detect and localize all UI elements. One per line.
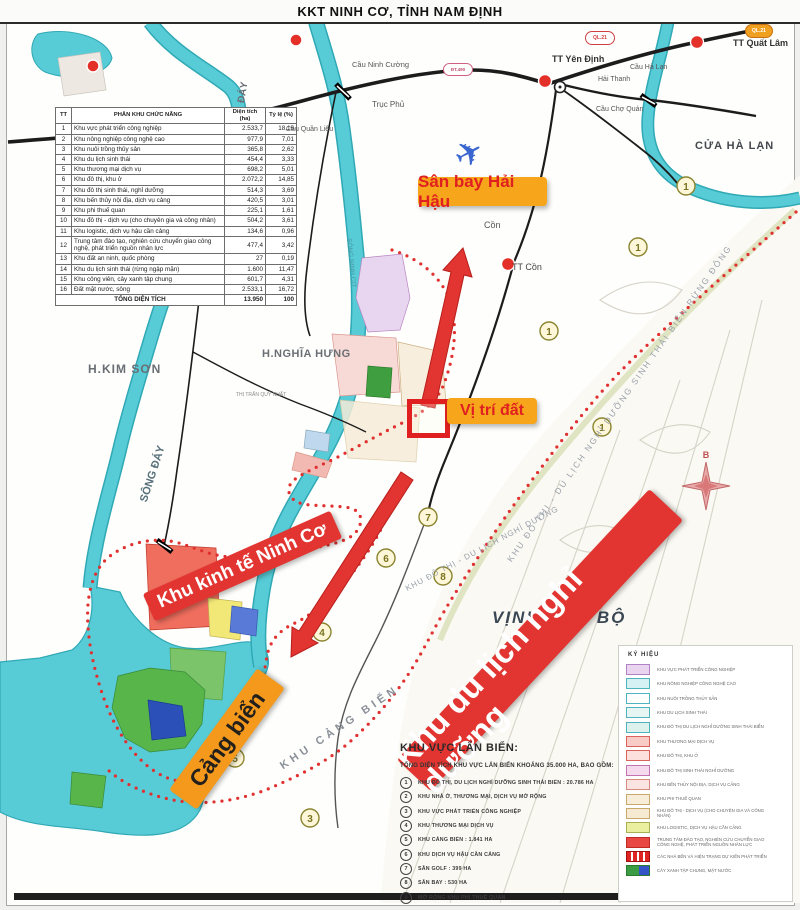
legend-label: KHU PHI THUẾ QUAN (650, 796, 777, 801)
legend-swatch (626, 794, 650, 805)
label-cau-ninh-cuong: Cầu Ninh Cường (352, 60, 409, 69)
item-number-badge: 1 (400, 777, 412, 789)
item-label: KHU NHÀ Ở, THƯƠNG MẠI, DỊCH VỤ MỞ RỘNG (418, 794, 547, 800)
road-shield-dt490: ĐT.490 (443, 63, 473, 76)
legend-item: TRUNG TÂM ĐÀO TẠO, NGHIÊN CỨU CHUYỂN GIA… (626, 837, 792, 848)
table-row: 8Khu bến thủy nội địa, dịch vụ cảng420,5… (56, 195, 297, 205)
legend-swatch (626, 678, 650, 689)
legend-swatch (626, 664, 650, 675)
table-row: 12Trung tâm đào tạo, nghiên cứu chuyển g… (56, 236, 297, 253)
sea-reclaim-item: 3KHU VỰC PHÁT TRIỂN CÔNG NGHIỆP (400, 805, 625, 819)
legend-swatch (626, 808, 650, 819)
legend-item: KHU THƯƠNG MẠI DỊCH VỤ (626, 736, 792, 747)
table-body: 1Khu vực phát triển công nghiệp2.533,718… (56, 124, 297, 295)
label-cau-cho-quan: Cầu Chợ Quán (596, 106, 643, 113)
sea-reclaim-item: 2KHU NHÀ Ở, THƯƠNG MẠI, DỊCH VỤ MỞ RỘNG (400, 790, 625, 804)
legend-label: KHU ĐÔ THỊ DU LỊCH NGHỈ DƯỠNG SINH THÁI … (650, 724, 777, 729)
legend-item: CÂY XANH TẬP CHUNG, MẶT NƯỚC (626, 865, 792, 876)
callout-airport: Sân bay Hải Hậu (418, 177, 547, 206)
item-number-badge: 9 (400, 892, 412, 904)
sea-reclaim-item: 6KHU DỊCH VỤ HẬU CẦN CẢNG (400, 847, 625, 861)
table-header-name: PHÂN KHU CHỨC NĂNG (72, 108, 225, 124)
legend-title: KÝ HIỆU (628, 652, 792, 658)
label-truc-phu: Trục Phủ (372, 100, 404, 109)
legend-swatch (626, 736, 650, 747)
item-number-badge: 2 (400, 791, 412, 803)
district-label-kim-son: H.KIM SƠN (88, 362, 161, 376)
item-label: SÂN GOLF : 399 HA (418, 866, 471, 872)
svg-text:6: 6 (383, 554, 389, 565)
town-label-tt-con: TT Cồn (512, 262, 542, 272)
table-row: 14Khu du lịch sinh thái (rừng ngập mặn)1… (56, 264, 297, 274)
table-row: 9Khu phi thuế quan225,11,61 (56, 206, 297, 216)
town-label-yen-dinh: TT Yên Định (552, 54, 604, 64)
table-total-row: TỔNG DIỆN TÍCH13.950100 (56, 295, 297, 305)
item-label: KHU THƯƠNG MẠI DỊCH VỤ (418, 823, 494, 829)
label-hai-thanh: Hải Thanh (598, 76, 630, 83)
legend-item: KHU DU LỊCH SINH THÁI (626, 707, 792, 718)
item-number-badge: 3 (400, 806, 412, 818)
table-row: 4Khu du lịch sinh thái454,43,33 (56, 155, 297, 165)
svg-text:7: 7 (425, 513, 431, 524)
sea-reclaim-subheading: TỔNG DIỆN TÍCH KHU VỰC LẤN BIỂN KHOẢNG 3… (400, 763, 625, 769)
table-row: 15Khu công viên, cây xanh tập chung601,7… (56, 274, 297, 284)
item-number-badge: 8 (400, 877, 412, 889)
svg-text:1: 1 (683, 182, 689, 193)
table-row: 11Khu logistic, dịch vụ hậu cần cảng134,… (56, 226, 297, 236)
legend-swatch (626, 693, 650, 704)
table-row: 13Khu đất an ninh, quốc phòng270,19 (56, 254, 297, 264)
sea-reclaim-item: 9MỞ RỘNG KHU PHI THUẾ QUAN (400, 890, 625, 904)
legend-swatch (626, 837, 650, 848)
item-number-badge: 5 (400, 834, 412, 846)
table-row: 10Khu đô thị - dịch vụ (cho chuyên gia v… (56, 216, 297, 226)
legend-label: KHU ĐÔ THỊ, KHU Ở (650, 753, 777, 758)
legend-item: CÁC NHÀ BẾN VÀ HIỆN TRẠNG DỰ KIẾN PHÁT T… (626, 851, 792, 862)
legend-item: KHU NÔNG NGHIỆP CÔNG NGHỆ CAO (626, 678, 792, 689)
legend-items: KHU VỰC PHÁT TRIỂN CÔNG NGHIỆPKHU NÔNG N… (626, 664, 792, 876)
arrow-to-port (291, 472, 413, 657)
sea-reclaim-panel: KHU VỰC LẤN BIỂN: TỔNG DIỆN TÍCH KHU VỰC… (400, 742, 625, 905)
legend-panel: KÝ HIỆU KHU VỰC PHÁT TRIỂN CÔNG NGHIỆPKH… (618, 645, 793, 902)
svg-text:1: 1 (635, 243, 641, 254)
label-cau-quan-lieu: Cầu Quần Liêu (286, 126, 333, 133)
table-header-tt: TT (56, 108, 72, 124)
sea-reclaim-item: 7SÂN GOLF : 399 HA (400, 862, 625, 876)
legend-label: TRUNG TÂM ĐÀO TẠO, NGHIÊN CỨU CHUYỂN GIA… (650, 837, 777, 847)
item-label: SÂN BAY : 530 HA (418, 880, 467, 886)
label-con: Cồn (484, 220, 501, 230)
landuse-table: TT PHÂN KHU CHỨC NĂNG Diện tích (ha) Tỷ … (55, 107, 297, 306)
compass-north-label: B (703, 450, 710, 460)
sea-reclaim-heading: KHU VỰC LẤN BIỂN: (400, 742, 625, 754)
item-label: KHU CẢNG BIỂN : 1.841 HA (418, 837, 493, 843)
label-cua-ha-lan: CỬA HÀ LẠN (695, 140, 774, 152)
roundabout-center (559, 86, 562, 89)
sea-reclaim-item: 4KHU THƯƠNG MẠI DỊCH VỤ (400, 819, 625, 833)
town-label-quat-lam: TT Quất Lâm (733, 38, 788, 48)
legend-swatch (626, 822, 650, 833)
item-label: KHU ĐÔ THỊ, DU LỊCH NGHỈ DƯỠNG SINH THÁI… (418, 780, 594, 786)
legend-item: KHU ĐÔ THỊ, KHU Ở (626, 750, 792, 761)
item-number-badge: 4 (400, 820, 412, 832)
legend-item: KHU ĐÔ THỊ - DỊCH VỤ (CHO CHUYÊN GIA VÀ … (626, 808, 792, 819)
legend-item: KHU PHI THUẾ QUAN (626, 794, 792, 805)
table-header-area: Diện tích (ha) (225, 108, 266, 124)
legend-swatch (626, 851, 650, 862)
legend-swatch (626, 722, 650, 733)
legend-swatch (626, 779, 650, 790)
table-header-pct: Tỷ lệ (%) (266, 108, 297, 124)
map-screenshot: 1 1 1 1 7 8 6 4 5 3 B KKT NINH CƠ, TỈNH … (0, 0, 800, 910)
road-shield-ql21: QL.21 (585, 31, 615, 45)
table-row: 1Khu vực phát triển công nghiệp2.533,718… (56, 124, 297, 134)
sea-reclaim-item: 1KHU ĐÔ THỊ, DU LỊCH NGHỈ DƯỠNG SINH THÁ… (400, 776, 625, 790)
legend-label: KHU BẾN THỦY NỘI ĐỊA, DỊCH VỤ CẢNG (650, 782, 777, 787)
legend-item: KHU ĐÔ THỊ SINH THÁI NGHỈ DƯỠNG (626, 765, 792, 776)
sea-reclaim-item: 5KHU CẢNG BIỂN : 1.841 HA (400, 833, 625, 847)
legend-swatch (626, 707, 650, 718)
legend-label: KHU NÔNG NGHIỆP CÔNG NGHỆ CAO (650, 681, 777, 686)
legend-swatch (626, 750, 650, 761)
legend-label: KHU ĐÔ THỊ - DỊCH VỤ (CHO CHUYÊN GIA VÀ … (650, 808, 777, 818)
legend-item: KHU ĐÔ THỊ DU LỊCH NGHỈ DƯỠNG SINH THÁI … (626, 722, 792, 733)
legend-label: KHU ĐÔ THỊ SINH THÁI NGHỈ DƯỠNG (650, 768, 777, 773)
item-label: KHU DỊCH VỤ HẬU CẦN CẢNG (418, 852, 501, 858)
legend-label: KHU DU LỊCH SINH THÁI (650, 710, 777, 715)
table-row: 3Khu nuôi trồng thủy sản365,82,62 (56, 144, 297, 154)
town-label-quy-nhat: THỊ TRẤN QUỸ NHẤT (236, 392, 286, 398)
svg-text:3: 3 (307, 814, 313, 825)
legend-label: KHU THƯƠNG MẠI DỊCH VỤ (650, 739, 777, 744)
legend-item: KHU VỰC PHÁT TRIỂN CÔNG NGHIỆP (626, 664, 792, 675)
road-shield-ql21-b: QL.21 (745, 24, 773, 38)
legend-label: KHU VỰC PHÁT TRIỂN CÔNG NGHIỆP (650, 667, 777, 672)
table-row: 7Khu đô thị sinh thái, nghỉ dưỡng514,33,… (56, 185, 297, 195)
table-row: 16Đất mặt nước, sông2.533,116,72 (56, 285, 297, 295)
item-number-badge: 7 (400, 863, 412, 875)
legend-swatch (626, 865, 650, 876)
land-location-marker (407, 399, 450, 438)
legend-swatch (626, 765, 650, 776)
item-label: MỞ RỘNG KHU PHI THUẾ QUAN (418, 895, 506, 901)
legend-item: KHU LOGISTIC, DỊCH VỤ HẬU CẦN CẢNG (626, 822, 792, 833)
svg-text:1: 1 (546, 327, 552, 338)
svg-text:4: 4 (319, 628, 325, 639)
legend-label: CÁC NHÀ BẾN VÀ HIỆN TRẠNG DỰ KIẾN PHÁT T… (650, 854, 777, 859)
legend-item: KHU NUÔI TRỒNG THỦY SẢN (626, 693, 792, 704)
legend-label: KHU LOGISTIC, DỊCH VỤ HẬU CẦN CẢNG (650, 825, 777, 830)
legend-item: KHU BẾN THỦY NỘI ĐỊA, DỊCH VỤ CẢNG (626, 779, 792, 790)
item-number-badge: 6 (400, 849, 412, 861)
sea-reclaim-items: 1KHU ĐÔ THỊ, DU LỊCH NGHỈ DƯỠNG SINH THÁ… (400, 776, 625, 905)
table-row: 2Khu nông nghiệp công nghệ cao977,97,01 (56, 134, 297, 144)
legend-label: KHU NUÔI TRỒNG THỦY SẢN (650, 696, 777, 701)
callout-land-location: Vị trí đất (447, 398, 537, 424)
table-row: 5Khu thương mại dịch vụ698,25,01 (56, 165, 297, 175)
arrow-to-airport (421, 248, 472, 408)
item-label: KHU VỰC PHÁT TRIỂN CÔNG NGHIỆP (418, 809, 521, 815)
district-label-nghia-hung: H.NGHĨA HƯNG (262, 348, 351, 360)
page-title: KKT NINH CƠ, TỈNH NAM ĐỊNH (0, 0, 800, 24)
table-row: 6Khu đô thị, khu ở2.072,214,85 (56, 175, 297, 185)
legend-label: CÂY XANH TẬP CHUNG, MẶT NƯỚC (650, 868, 777, 873)
label-cau-ha-lan: Cầu Hà Lạn (630, 64, 667, 71)
sea-reclaim-item: 8SÂN BAY : 530 HA (400, 876, 625, 890)
